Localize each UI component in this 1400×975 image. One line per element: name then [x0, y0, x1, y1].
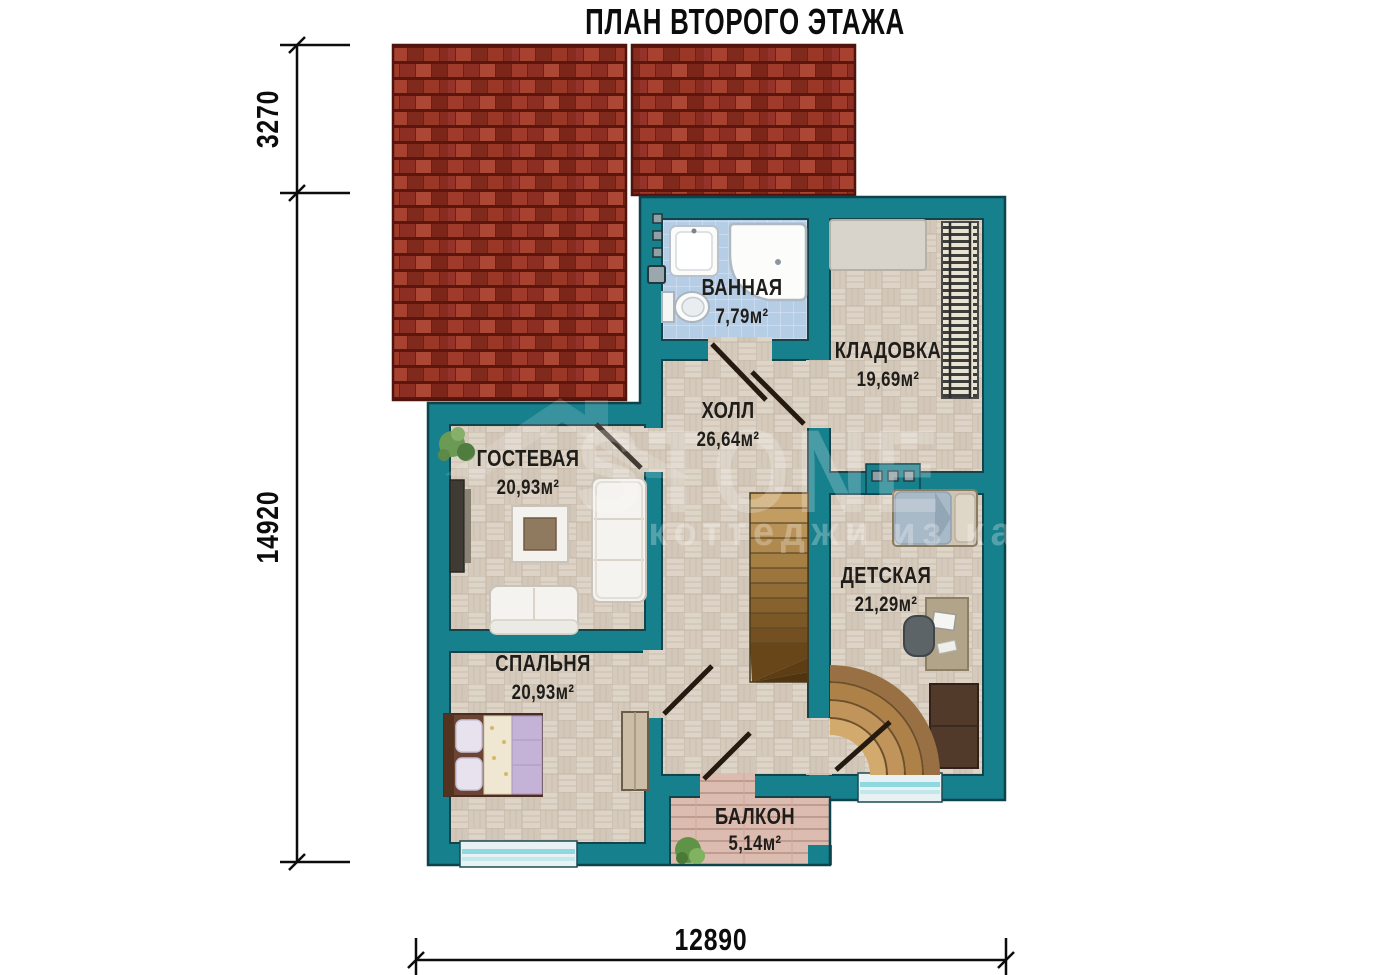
door-opening-children	[806, 718, 832, 775]
room-area: 20,93м²	[512, 681, 575, 704]
office-chair-icon	[904, 616, 934, 656]
page-title: ПЛАН ВТОРОГО ЭТАЖА	[585, 2, 905, 42]
floor-plan-svg: STONE коттеджи из камня ВАННАЯ 7,79м² КЛ…	[0, 0, 1400, 975]
wardrobe-icon	[622, 712, 648, 790]
tv-stand-icon	[450, 480, 464, 572]
children-window	[858, 773, 942, 802]
tv-screen	[465, 489, 471, 563]
room-name: ГОСТЕВАЯ	[477, 446, 580, 471]
room-name: ХОЛЛ	[701, 398, 754, 423]
room-area: 19,69м²	[857, 368, 920, 391]
watermark-tagline: коттеджи из камня	[648, 510, 1111, 554]
dim-plan-width: 12890	[675, 922, 748, 956]
room-area: 7,79м²	[715, 305, 768, 328]
shelf-rack-icon	[942, 222, 978, 398]
loveseat-icon	[490, 586, 578, 634]
pillow	[456, 720, 482, 752]
dim-plan-height: 14920	[250, 491, 284, 564]
room-name: ДЕТСКАЯ	[841, 563, 931, 588]
balcony-pillar	[808, 845, 832, 865]
room-name: ВАННАЯ	[701, 275, 782, 300]
sink-faucet	[692, 229, 697, 234]
dim-roof-height: 3270	[250, 90, 284, 148]
title-group: ПЛАН ВТОРОГО ЭТАЖА	[585, 2, 905, 42]
room-name: КЛАДОВКА	[835, 338, 941, 363]
room-area: 26,64м²	[697, 428, 760, 451]
roof-right-slope	[632, 45, 855, 195]
coffee-table-icon	[512, 506, 568, 562]
door-opening-bedroom	[643, 650, 669, 718]
room-area: 20,93м²	[497, 476, 560, 499]
bed-icon	[444, 714, 542, 796]
floor-plan-page: STONE коттеджи из камня ВАННАЯ 7,79м² КЛ…	[0, 0, 1400, 975]
bathtub-drain	[775, 259, 781, 265]
pillow	[456, 758, 482, 790]
room-name: БАЛКОН	[715, 804, 795, 829]
roof-left-slope	[393, 45, 626, 400]
sink-basin	[676, 232, 712, 270]
room-area: 21,29м²	[855, 593, 918, 616]
bedroom-window	[460, 841, 577, 867]
counter-icon	[830, 220, 926, 270]
room-area: 5,14м²	[728, 832, 781, 855]
room-name: СПАЛЬНЯ	[495, 651, 590, 676]
